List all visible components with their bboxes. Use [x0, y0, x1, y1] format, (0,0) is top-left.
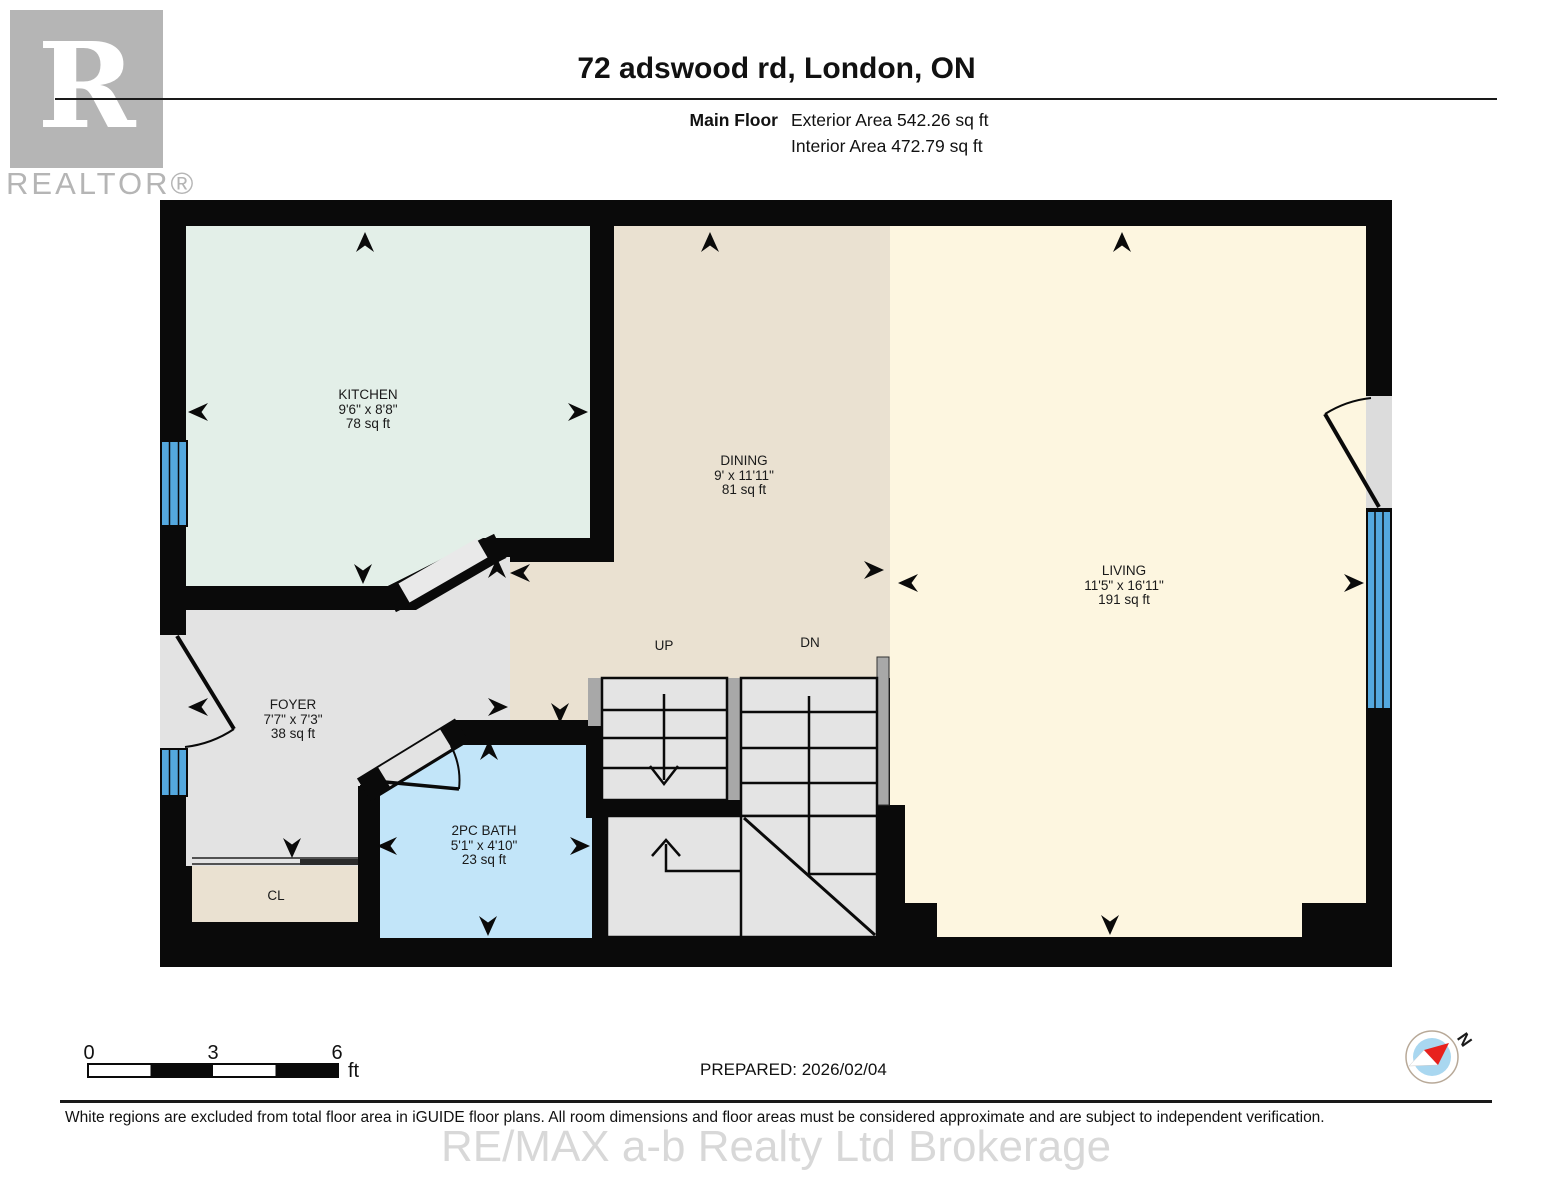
room-area: 191 sq ft [1084, 593, 1164, 608]
brokerage-watermark: RE/MAX a-b Realty Ltd Brokerage [441, 1122, 1111, 1172]
living-window [1367, 511, 1391, 709]
stair-landing [607, 816, 877, 937]
compass-icon [1406, 1031, 1458, 1083]
scale-bar [88, 1064, 338, 1077]
room-name: FOYER [263, 698, 322, 713]
room-area: 23 sq ft [451, 853, 518, 868]
room-dims: 9'6" x 8'8" [338, 403, 397, 418]
room-dims: 11'5" x 16'11" [1084, 579, 1164, 594]
stair-up-flight [602, 678, 727, 800]
room-name: LIVING [1084, 564, 1164, 579]
room-name: DINING [714, 454, 774, 469]
dining-floor [614, 226, 890, 678]
closet-label: CL [267, 888, 284, 903]
exterior-area: Exterior Area 542.26 sq ft [791, 110, 988, 131]
room-name: KITCHEN [338, 388, 397, 403]
prepared-date: PREPARED: 2026/02/04 [700, 1060, 887, 1080]
stair-rail-left [588, 678, 602, 726]
foyer-door-opening [160, 635, 186, 748]
floorplan-page: R REALTOR® 72 adswood rd, London, ON Mai… [0, 0, 1553, 1200]
room-label-dining: DINING 9' x 11'11" 81 sq ft [714, 454, 774, 498]
room-area: 38 sq ft [263, 727, 322, 742]
kitchen-window [161, 441, 187, 526]
room-label-foyer: FOYER 7'7" x 7'3" 38 sq ft [263, 698, 322, 742]
room-name: 2PC BATH [451, 824, 518, 839]
scale-end: 6 [331, 1042, 342, 1065]
scale-unit: ft [348, 1060, 359, 1083]
room-dims: 5'1" x 4'10" [451, 839, 518, 854]
room-dims: 9' x 11'11" [714, 469, 774, 484]
stair-rail-right [877, 657, 889, 805]
room-label-bath: 2PC BATH 5'1" x 4'10" 23 sq ft [451, 824, 518, 868]
floorplan-drawing [0, 0, 1553, 1200]
stairs [588, 657, 889, 937]
stair-rail-mid [727, 678, 741, 800]
interior-area: Interior Area 472.79 sq ft [791, 136, 983, 157]
room-label-living: LIVING 11'5" x 16'11" 191 sq ft [1084, 564, 1164, 608]
room-area: 81 sq ft [714, 483, 774, 498]
floor-label: Main Floor [560, 110, 778, 131]
room-dims: 7'7" x 7'3" [263, 713, 322, 728]
page-title: 72 adswood rd, London, ON [0, 52, 1553, 86]
scale-mid: 3 [207, 1042, 218, 1065]
foyer-window [161, 749, 187, 796]
room-area: 78 sq ft [338, 417, 397, 432]
stair-down-flight [741, 678, 877, 816]
stairs-up-label: UP [655, 638, 674, 653]
scale-start: 0 [83, 1042, 94, 1065]
stairs-down-label: DN [800, 635, 820, 650]
room-label-kitchen: KITCHEN 9'6" x 8'8" 78 sq ft [338, 388, 397, 432]
